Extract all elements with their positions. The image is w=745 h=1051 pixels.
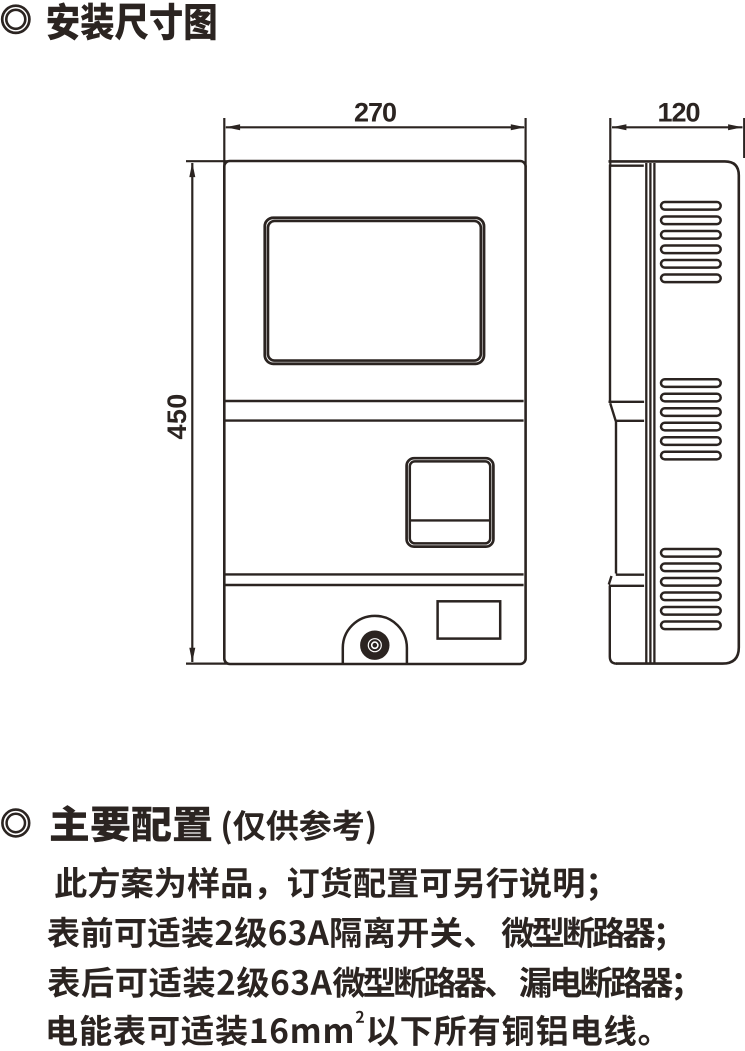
svg-text:270: 270	[354, 98, 396, 128]
svg-text:450: 450	[162, 393, 192, 439]
svg-text:120: 120	[657, 98, 699, 128]
